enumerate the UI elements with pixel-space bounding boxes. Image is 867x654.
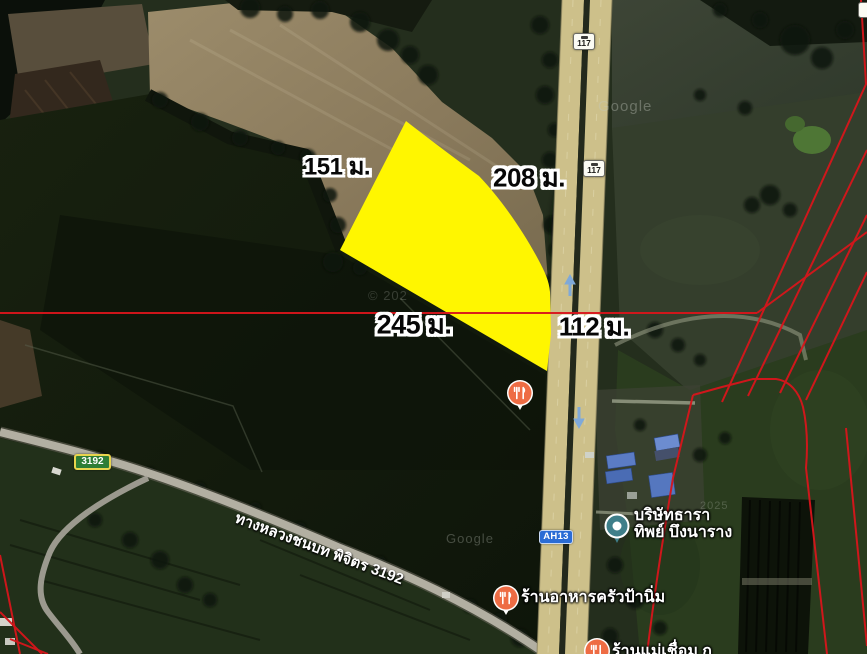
dimension-label-road-frontage: 112 ม. xyxy=(559,307,630,348)
route-shield-ah13[interactable]: AH13 xyxy=(539,530,573,544)
place-label-restaurant-clipped[interactable]: ร้านแม่เชื่อม ก xyxy=(612,643,712,654)
dimension-label-northwest: 151 ม. xyxy=(304,147,370,186)
google-watermark: Google xyxy=(598,98,652,115)
route-shield-3192[interactable]: 3192 xyxy=(74,454,111,470)
dimension-label-northeast: 208 ม. xyxy=(493,158,565,199)
imagery-year-watermark: © 202 xyxy=(368,288,408,303)
route-shield-117-mid[interactable]: 117 xyxy=(583,160,605,177)
place-label-company-line2[interactable]: ทิพย์ บึงนาราง xyxy=(634,524,732,541)
place-label-company-line1[interactable]: บริษัทธารา xyxy=(634,507,710,524)
route-shield-clipped[interactable] xyxy=(858,2,867,18)
google-watermark: Google xyxy=(446,531,494,546)
route-shield-117-top[interactable]: 117 xyxy=(573,33,595,50)
satellite-map: Google Google 2025 © 202 151 ม. 208 ม. 2… xyxy=(0,0,867,654)
dimension-label-south: 245 ม. xyxy=(377,303,452,346)
place-label-restaurant[interactable]: ร้านอาหารครัวป้านิ่ม xyxy=(521,589,665,606)
